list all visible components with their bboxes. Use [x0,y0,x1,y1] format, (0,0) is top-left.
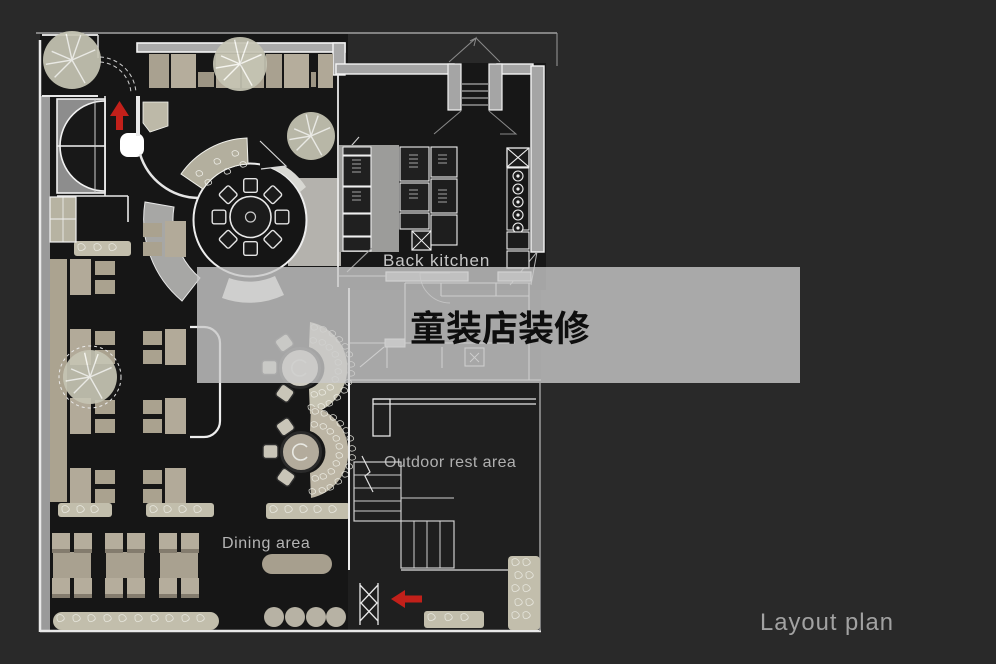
svg-text:Dining area: Dining area [222,535,310,552]
svg-text:Layout plan: Layout plan [760,609,894,636]
svg-text:Outdoor rest area: Outdoor rest area [384,454,516,471]
